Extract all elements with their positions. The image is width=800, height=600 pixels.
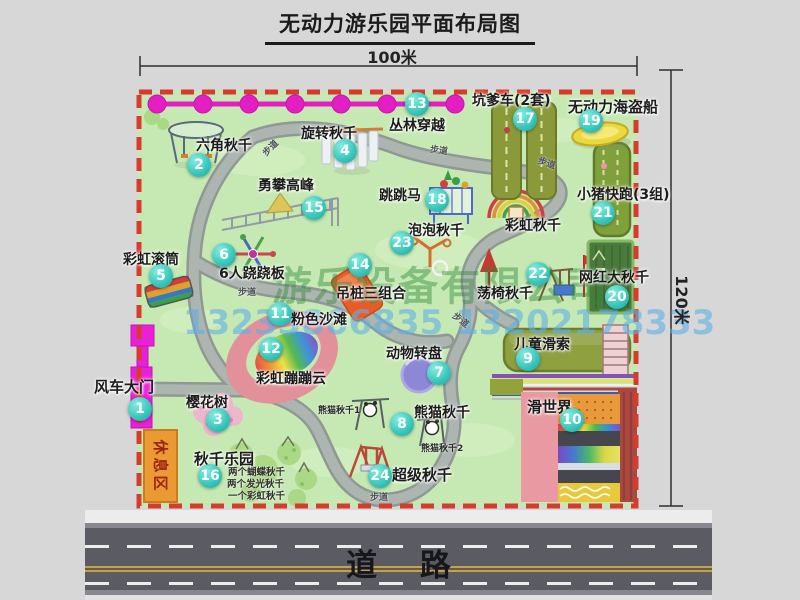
attraction-badge-6: 6 bbox=[212, 243, 236, 267]
footpath-label-4: 步道 bbox=[238, 285, 256, 298]
screenshot-root: 无动力游乐园平面布局图 100米 120米 bbox=[0, 0, 800, 600]
attraction-badge-15: 15 bbox=[302, 196, 326, 220]
attraction-badge-16: 16 bbox=[198, 464, 222, 488]
attraction-label-12: 彩虹蹦蹦云 bbox=[256, 368, 326, 388]
label-panda-swing-2: 熊猫秋千2 bbox=[421, 441, 463, 454]
attraction-badge-18: 18 bbox=[425, 188, 449, 212]
label-rainbow-swing: 彩虹秋千 bbox=[505, 215, 561, 235]
attraction-label-6: 6人跷跷板 bbox=[219, 263, 285, 283]
attraction-label-11: 粉色沙滩 bbox=[291, 309, 347, 329]
attraction-badge-2: 2 bbox=[187, 153, 211, 177]
attraction-badge-24: 24 bbox=[368, 464, 392, 488]
attraction-label-17: 坑爹车(2套) bbox=[472, 90, 551, 110]
label-panda-swing-1: 熊猫秋千1 bbox=[318, 403, 360, 416]
attraction-badge-22: 22 bbox=[526, 262, 550, 286]
attraction-badge-17: 17 bbox=[513, 107, 537, 131]
attraction-label-22: 荡椅秋千 bbox=[477, 283, 533, 303]
road-label: 道 路 bbox=[85, 540, 712, 585]
attraction-badge-20: 20 bbox=[605, 285, 629, 309]
swing-paradise-note-3: 一个彩虹秋千 bbox=[228, 488, 285, 502]
attraction-badge-21: 21 bbox=[591, 201, 615, 225]
attraction-badge-1: 1 bbox=[128, 397, 152, 421]
attraction-label-14: 吊桩三组合 bbox=[336, 283, 406, 303]
attraction-badge-3: 3 bbox=[206, 408, 230, 432]
attraction-label-21: 小猪快跑(3组) bbox=[577, 184, 670, 204]
footpath-label-2: 步道 bbox=[429, 142, 449, 157]
attraction-badge-8: 8 bbox=[390, 412, 414, 436]
attraction-label-23: 泡泡秋千 bbox=[408, 220, 464, 240]
attraction-badge-19: 19 bbox=[579, 109, 603, 133]
road-surface: 道 路 bbox=[85, 523, 712, 595]
attraction-label-8: 熊猫秋千 bbox=[414, 402, 470, 422]
attraction-badge-12: 12 bbox=[259, 337, 283, 361]
page-title: 无动力游乐园平面布局图 bbox=[265, 6, 535, 45]
watermark-phone: 13233806835 13202178333 bbox=[183, 303, 715, 343]
rest-area-label: 休息区 bbox=[150, 439, 171, 493]
road-shoulder-top bbox=[85, 510, 712, 523]
attraction-badge-4: 4 bbox=[333, 139, 357, 163]
attraction-badge-14: 14 bbox=[348, 253, 372, 277]
footpath-label-6: 步道 bbox=[370, 490, 388, 503]
attraction-badge-9: 9 bbox=[516, 347, 540, 371]
attraction-label-24: 超级秋千 bbox=[392, 464, 452, 485]
attraction-label-18: 跳跳马 bbox=[379, 185, 421, 205]
attraction-badge-13: 13 bbox=[405, 92, 429, 116]
attraction-badge-11: 11 bbox=[268, 302, 292, 326]
dimension-height-label: 120米 bbox=[677, 264, 695, 336]
attraction-label-5: 彩虹滚筒 bbox=[123, 249, 179, 269]
attraction-label-15: 勇攀高峰 bbox=[258, 175, 314, 195]
attraction-label-2: 六角秋千 bbox=[196, 135, 252, 155]
attraction-label-7: 动物转盘 bbox=[386, 343, 442, 363]
attraction-label-20: 网红大秋千 bbox=[579, 267, 649, 287]
dimension-width-label: 100米 bbox=[352, 44, 432, 68]
attraction-label-1: 风车大门 bbox=[94, 376, 154, 397]
attraction-badge-5: 5 bbox=[149, 264, 173, 288]
road-shoulder-bottom bbox=[85, 595, 712, 600]
rest-area-zone: 休息区 bbox=[143, 429, 178, 503]
attraction-label-13: 丛林穿越 bbox=[389, 115, 445, 135]
attraction-badge-7: 7 bbox=[427, 361, 451, 385]
attraction-badge-10: 10 bbox=[560, 408, 584, 432]
attraction-badge-23: 23 bbox=[390, 231, 414, 255]
